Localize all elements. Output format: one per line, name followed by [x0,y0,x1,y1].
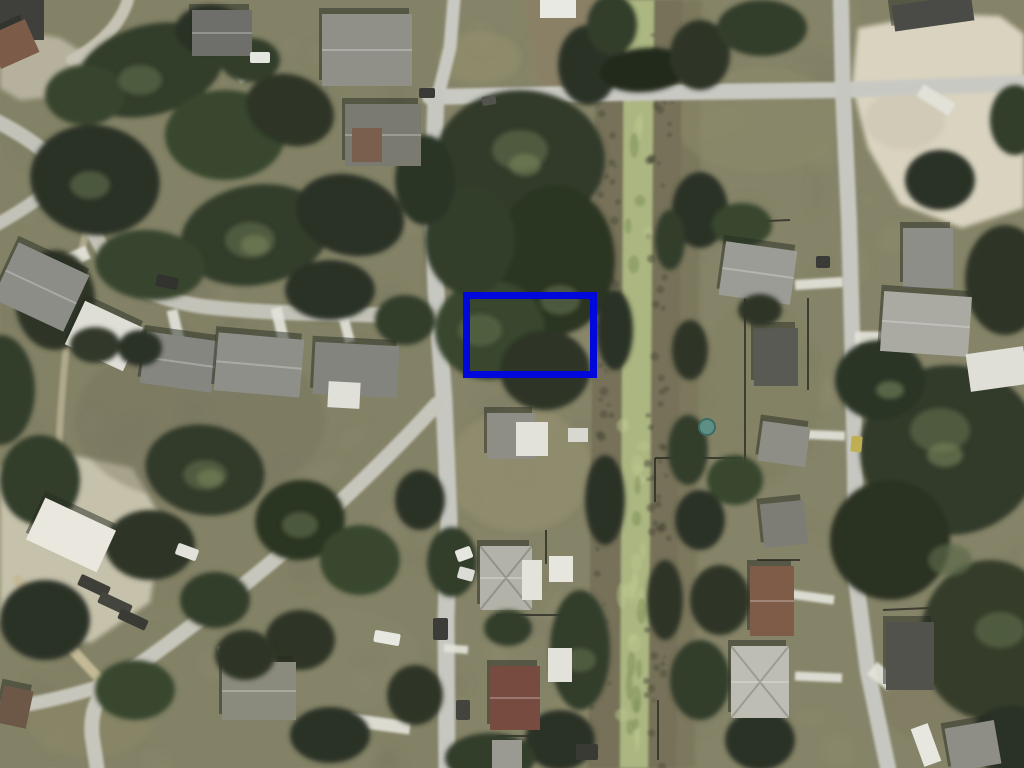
canal-speckle [658,459,663,464]
canal-speckle [632,718,639,730]
house-roof [945,720,1002,768]
tree-canopy [95,660,175,720]
canal-speckle [597,432,606,441]
canal-speckle [661,306,666,311]
house-roof [540,0,576,18]
canal-speckle [646,413,651,418]
canal-speckle [631,685,642,713]
canal-speckle [652,520,658,526]
canal-speckle [647,255,655,263]
canal-speckle [600,387,609,396]
house-roof [522,560,542,600]
canal-speckle [662,274,668,280]
leaf-highlight [118,65,162,95]
vehicle [419,88,435,98]
tree-canopy [672,320,708,380]
canal-speckle [634,728,639,752]
house-roof [568,428,588,442]
canal-speckle [653,102,661,110]
tree-overhang [738,294,782,326]
canal-speckle [663,656,666,659]
aerial-photo [0,0,1024,768]
canal-speckle [648,154,657,163]
tree-canopy [647,560,683,640]
canal-speckle [652,698,656,702]
house-roof [903,228,953,288]
tree-canopy [290,707,370,763]
canal-speckle [603,603,606,606]
canal-speckle [670,100,674,104]
canal-speckle [608,412,614,418]
canal-speckle [615,709,628,721]
canal-speckle [661,444,668,451]
tree-canopy [830,480,950,600]
vehicle [456,700,470,720]
canal-speckle [598,397,602,401]
tree-canopy [395,470,445,530]
tree-canopy [585,455,625,545]
canal-speckle [660,661,665,666]
canal-speckle [650,652,658,660]
house-roof [516,422,548,456]
canal-speckle [640,543,646,558]
canal-speckle [628,634,636,644]
canal-speckle [627,651,635,676]
canal-speckle [637,441,650,450]
canal-speckle [647,684,655,692]
canal-speckle [634,476,640,495]
tree-canopy [427,527,477,597]
house-roof [352,128,382,162]
leaf-highlight [876,381,904,399]
leaf-highlight [540,285,580,315]
leaf-highlight [70,171,110,199]
canal-speckle [637,113,643,133]
canal-speckle [644,627,650,633]
canal-speckle [666,535,672,541]
canal-speckle [610,217,618,225]
canal-speckle [655,526,660,531]
canal-speckle [657,161,661,165]
canal-speckle [658,375,665,382]
vehicle [576,744,598,760]
canal-speckle [600,410,608,418]
vehicle [250,52,270,63]
tree-overhang [118,330,162,366]
canal-speckle [614,165,617,168]
canal-speckle [643,227,653,239]
canal-speckle [648,424,654,430]
canal-speckle [643,678,650,685]
canal-speckle [659,389,665,395]
canal-speckle [659,670,667,678]
vehicle [850,436,862,453]
canal-speckle [668,122,672,126]
house-roof [886,622,934,690]
render-root [0,0,1024,768]
canal-speckle [608,682,612,686]
canal-speckle [664,474,668,478]
tree-canopy [180,572,250,628]
canal-speckle [637,598,647,624]
canal-speckle [631,456,644,476]
canal-speckle [652,300,660,308]
tree-canopy [285,260,375,320]
vehicle [433,618,448,640]
canal-speckle [648,528,656,536]
tree-canopy [320,525,400,595]
tree-canopy [717,0,807,56]
canal-speckle [644,692,650,698]
pool [699,419,715,435]
driveway [795,282,843,285]
canal-speckle [594,570,601,577]
tree-canopy [387,665,443,725]
canal-speckle [631,554,642,572]
canal-speckle [662,100,667,105]
tree-canopy [707,455,763,505]
canal-speckle [653,664,660,671]
canal-speckle [650,352,659,361]
canal-speckle [595,547,600,552]
tree-canopy [670,640,730,720]
canal-speckle [609,159,616,166]
leaf-highlight [197,469,223,487]
canal-speckle [632,511,641,526]
canal-speckle [661,184,665,188]
tree-canopy [905,150,975,210]
canal-speckle [647,729,655,737]
driveway [795,676,842,678]
canal-speckle [617,419,629,433]
tree-canopy [375,295,435,345]
leaf-highlight [975,612,1024,648]
canal-speckle [636,659,642,678]
canal-speckle [644,460,652,468]
canal-speckle [646,478,650,482]
canal-speckle [615,199,621,205]
tree-canopy [0,580,90,660]
canal-speckle [646,503,655,512]
tree-overhang [484,610,532,646]
canal-speckle [598,363,603,368]
canal-speckle [656,494,661,499]
house-roof [966,346,1024,392]
tree-canopy [655,210,685,270]
canal-speckle [658,401,664,407]
canal-speckle [630,133,639,158]
tree-canopy [690,565,750,635]
vehicle [816,256,830,268]
leaf-highlight [927,443,963,467]
canal-speckle [598,110,606,118]
canal-speckle [622,584,635,598]
leaf-highlight [928,544,972,576]
tree-overhang [70,327,120,363]
driveway [790,594,834,600]
house-roof [754,328,798,386]
tree-canopy [597,290,633,370]
house-roof [760,500,808,548]
canal-speckle [635,195,646,206]
driveway [444,648,468,650]
house-roof [548,648,572,682]
tree-canopy [45,65,125,125]
canal-speckle [604,369,608,373]
canal-speckle [625,218,632,233]
tree-overhang [215,630,275,680]
tree-canopy [500,330,590,410]
house-roof [549,556,573,582]
leaf-highlight [241,235,269,255]
house-roof [757,421,810,467]
canal-speckle [667,133,672,138]
canal-speckle [609,132,616,139]
canal-speckle [628,256,639,274]
house-roof [492,740,522,768]
aerial-canvas [0,0,1024,768]
canal-speckle [597,192,604,199]
leaf-highlight [509,154,541,176]
canal-speckle [604,174,609,179]
canal-speckle [609,179,615,185]
canal-speckle [607,403,611,407]
leaf-highlight [282,512,318,538]
tree-canopy [725,710,795,768]
canal-speckle [656,286,664,294]
house-roof [327,381,360,409]
canal-speckle [651,33,655,37]
